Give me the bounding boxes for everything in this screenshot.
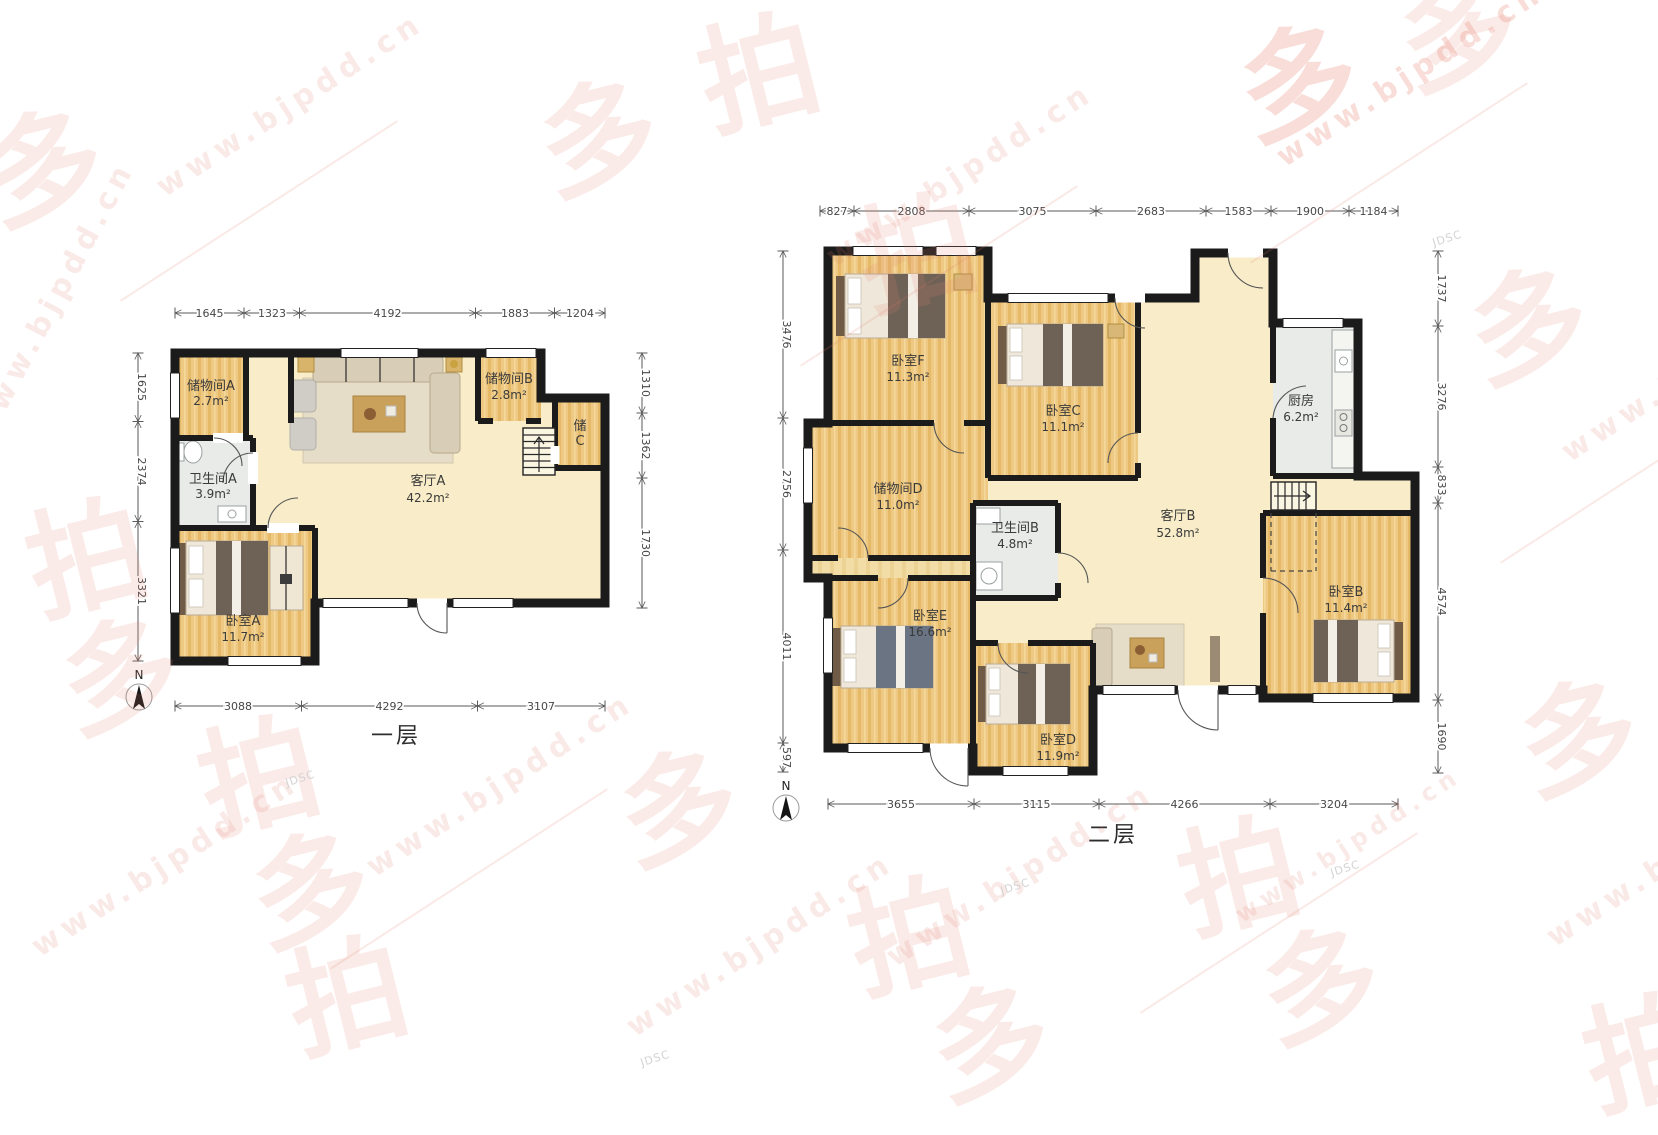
- watermark-url-text: www.bjpdd.cn: [150, 5, 430, 204]
- dim-label: 833: [1435, 475, 1448, 496]
- window: [1008, 294, 1108, 303]
- dim-label: 3476: [780, 321, 793, 349]
- watermark-line: [1140, 832, 1418, 1013]
- dim-label: 4266: [1171, 798, 1199, 811]
- door-gap: [551, 446, 560, 464]
- dim-label: 1625: [135, 373, 148, 401]
- blanket: [1043, 324, 1103, 386]
- room-label: 卧室B: [1329, 584, 1364, 600]
- room-area: 11.4m²: [1324, 601, 1367, 615]
- coffee-table: [353, 396, 405, 432]
- dim-label: 1323: [258, 307, 286, 320]
- watermark-brand-char: 多: [0, 97, 116, 240]
- dim-label: 2374: [135, 458, 148, 486]
- pillow: [1378, 624, 1390, 648]
- watermark-line: [330, 788, 608, 969]
- room-label: 储: [573, 419, 586, 434]
- room-label: 卧室E: [913, 608, 947, 624]
- room-label: 储物间B: [485, 372, 533, 387]
- bed-headboard: [978, 666, 986, 722]
- entry-door-gap: [1228, 249, 1263, 258]
- floor2-dims-bottom: 3655 3115 4266 3204: [828, 798, 1398, 811]
- tv-cabinet: [1210, 636, 1220, 682]
- watermark-brand-char: 多: [1227, 12, 1370, 155]
- coffee-table: [1130, 638, 1164, 668]
- storage-b-floor: [478, 353, 541, 421]
- watermark-url-text: www.bjpdd.cn: [1540, 755, 1658, 954]
- door-gap: [248, 452, 258, 484]
- dim-label: 597: [780, 747, 793, 768]
- dim-label: 3655: [887, 798, 915, 811]
- bed-headboard: [832, 628, 841, 686]
- floor2-dims-right: 1737 3276 833 4574 1690: [1433, 251, 1449, 773]
- table-decor: [364, 408, 376, 420]
- window: [936, 247, 976, 256]
- dim-label: 3075: [1019, 205, 1047, 218]
- bed-runner: [1063, 324, 1072, 386]
- dim-label: 3107: [527, 700, 555, 713]
- dim-label: 1900: [1296, 205, 1324, 218]
- floorplan-second-floor: 卧室F 11.3m² 卧室C 11.1m² 储物间D 11.0m² 卫生间B 4…: [758, 158, 1458, 858]
- watermark-url-text: www.bjpdd.cn: [25, 765, 305, 964]
- bed-runner: [896, 626, 905, 688]
- dim-label: 1737: [1435, 275, 1448, 303]
- watermark-brand-char: 拍: [837, 865, 980, 1008]
- window: [323, 599, 408, 608]
- dim-label: 2808: [898, 205, 926, 218]
- bed-runner: [1328, 620, 1337, 682]
- room-area: 11.9m²: [1036, 749, 1079, 763]
- sink-bowl: [1340, 357, 1348, 365]
- dim-label: 1184: [1360, 205, 1388, 218]
- room-area: 16.6m²: [908, 625, 951, 639]
- watermark-brand-char: 多: [1457, 255, 1600, 398]
- pillow: [1010, 328, 1022, 352]
- watermark-brand-char: 拍: [687, 2, 830, 145]
- pillow: [848, 278, 861, 304]
- room-area: 2.7m²: [193, 394, 229, 408]
- room-label: 厨房: [1288, 393, 1314, 409]
- tv: [280, 574, 292, 584]
- window: [341, 349, 418, 358]
- window: [228, 657, 301, 666]
- door-arc: [1178, 690, 1218, 730]
- pillow: [189, 546, 203, 574]
- nightstand: [954, 274, 972, 290]
- watermark-brand-char: 拍: [275, 925, 418, 1068]
- room-label: 卧室C: [1045, 403, 1080, 419]
- decor: [450, 360, 458, 368]
- pillow: [989, 668, 1000, 690]
- bed-runner: [1036, 664, 1045, 724]
- room-label: 客厅A: [411, 473, 446, 489]
- watermark-brand-char: 多: [1387, 0, 1530, 106]
- dim-label: 1730: [639, 529, 652, 557]
- floor1-dims-bottom: 3088 4292 3107: [175, 700, 605, 713]
- watermark-small-text: JDSC: [639, 1048, 672, 1070]
- table-decor: [1149, 654, 1157, 662]
- bed-runner: [908, 274, 918, 338]
- room-area: 11.1m²: [1041, 420, 1084, 434]
- room-label: 储物间A: [187, 379, 235, 394]
- watermark-url-text: www.bjpdd.cn: [1555, 270, 1658, 469]
- room-area: 11.0m²: [876, 498, 919, 512]
- room-label: 卫生间A: [189, 472, 237, 487]
- watermark-brand-char: 多: [919, 972, 1062, 1115]
- window: [1103, 686, 1175, 695]
- room-label: 储物间D: [873, 482, 922, 497]
- window: [1003, 767, 1068, 776]
- door-gap: [267, 523, 299, 533]
- window: [824, 618, 833, 673]
- blanket: [216, 541, 268, 615]
- window: [1228, 686, 1256, 695]
- floor1-dims-top: 1645 1323 4192 1883 1204: [175, 307, 605, 320]
- side-table: [298, 356, 314, 372]
- room-area: 4.8m²: [997, 537, 1033, 551]
- window: [171, 548, 180, 613]
- dim-label: 4011: [780, 633, 793, 661]
- window: [1313, 694, 1393, 703]
- table-decor: [1135, 645, 1145, 655]
- dim-label: 2756: [780, 470, 793, 498]
- door-arc: [930, 748, 968, 786]
- dim-label: 4292: [376, 700, 404, 713]
- dim-label: 1310: [639, 369, 652, 397]
- dim-label: 1883: [501, 307, 529, 320]
- watermark-small-text: JDSC: [1329, 858, 1362, 880]
- door-gap: [1115, 294, 1145, 303]
- dim-label: 3276: [1435, 383, 1448, 411]
- nightstand: [1108, 324, 1124, 338]
- dim-label: 2683: [1137, 205, 1165, 218]
- watermark-line: [1500, 382, 1658, 563]
- floor1-title: 一层: [371, 724, 421, 749]
- bed-runner: [232, 541, 241, 615]
- pillow: [1010, 356, 1022, 380]
- room-label: 卧室F: [891, 353, 924, 369]
- window: [853, 247, 923, 256]
- compass-n-label: N: [782, 779, 791, 793]
- dim-label: 3204: [1320, 798, 1348, 811]
- floor1-dims-right: 1310 1362 1730: [637, 353, 653, 608]
- room-area: 2.8m²: [491, 388, 527, 402]
- pillow: [989, 694, 1000, 716]
- window: [486, 349, 536, 358]
- window: [1283, 319, 1343, 328]
- dim-label: 827: [827, 205, 848, 218]
- dim-label: 4192: [374, 307, 402, 320]
- watermark-brand-char: 拍: [1572, 982, 1658, 1125]
- floor2-dims-top: 827 2808 3075 2683 1583 1900 1184: [820, 205, 1398, 218]
- staircase: [523, 428, 555, 475]
- floorplan-first-floor: 储物间A 2.7m² 卫生间A 3.9m² 卧室A 11.7m² 客厅A 42.…: [118, 278, 678, 778]
- room-area: 52.8m²: [1156, 526, 1199, 540]
- pillow: [1378, 652, 1390, 676]
- door-gap: [930, 744, 968, 753]
- pillow: [844, 630, 856, 654]
- dim-label: 1690: [1435, 723, 1448, 751]
- dim-label: 3115: [1023, 798, 1051, 811]
- dim-label: 1583: [1225, 205, 1253, 218]
- door-gap: [1178, 686, 1218, 695]
- pillow: [844, 658, 856, 682]
- floor2-dims-left: 3476 2756 4011 597: [778, 251, 794, 772]
- pillow: [189, 579, 203, 607]
- room-area: 11.7m²: [221, 630, 264, 644]
- watermark-small-text: JDSC: [999, 876, 1032, 898]
- watermark-brand-char: 多: [239, 819, 382, 962]
- washing-machine: [976, 562, 1002, 590]
- room-area: 42.2m²: [406, 491, 449, 505]
- dim-label: 1645: [196, 307, 224, 320]
- window: [453, 599, 513, 608]
- floor1-dims-left: 1625 2374 3321: [133, 353, 149, 661]
- window: [804, 448, 813, 503]
- room-area: 3.9m²: [195, 487, 231, 501]
- compass-n-label: N: [135, 668, 144, 682]
- door-gap: [417, 599, 447, 608]
- table-decor: [386, 406, 396, 416]
- room-area: 6.2m²: [1283, 410, 1319, 424]
- watermark-line: [120, 120, 398, 301]
- dim-label: 3321: [135, 577, 148, 605]
- room-label: 客厅B: [1161, 508, 1196, 524]
- bed-headboard: [836, 276, 845, 336]
- dim-label: 1362: [639, 432, 652, 460]
- toilet: [184, 441, 202, 463]
- room-label: 卧室A: [226, 613, 261, 629]
- dim-label: 4574: [1435, 588, 1448, 616]
- window: [848, 744, 923, 753]
- watermark-brand-char: 多: [527, 67, 670, 210]
- washbasin-bowl: [228, 510, 236, 518]
- room-area: 11.3m²: [886, 370, 929, 384]
- dim-label: 1204: [566, 307, 594, 320]
- floor2-title: 二层: [1088, 823, 1138, 848]
- room-label: 卫生间B: [991, 521, 1039, 536]
- watermark-brand-char: 多: [1507, 667, 1650, 810]
- room-label: 卧室D: [1040, 732, 1076, 748]
- compass-floor2: N: [773, 779, 799, 821]
- sofa-chaise: [430, 373, 460, 453]
- bed-headboard: [998, 326, 1007, 384]
- compass-floor1: N: [126, 668, 152, 710]
- pillow: [848, 308, 861, 334]
- watermark-brand-char: 多: [1249, 915, 1392, 1058]
- watermark-url-text: www.bjpdd.cn: [1270, 0, 1550, 174]
- dim-label: 3088: [224, 700, 252, 713]
- room-label: C: [575, 434, 584, 449]
- bed-headboard: [1394, 622, 1403, 680]
- window: [171, 373, 180, 418]
- sofa: [313, 356, 443, 382]
- watermark-url-text: www.bjpdd.cn: [620, 845, 900, 1044]
